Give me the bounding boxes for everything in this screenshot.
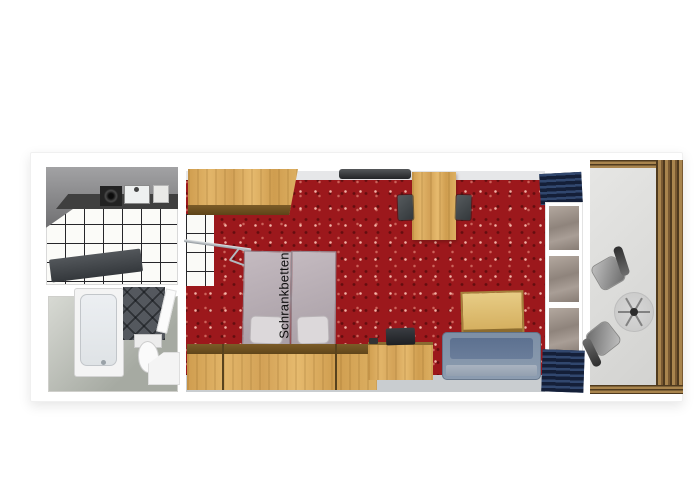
bathtub <box>74 288 124 377</box>
dining-table <box>412 172 456 240</box>
desk-tv <box>386 327 416 345</box>
pillow-right <box>297 315 330 344</box>
sideboard-seam <box>222 344 224 390</box>
sideboard <box>187 354 377 390</box>
wall-tv <box>339 169 411 179</box>
sofa <box>442 332 541 380</box>
desk <box>368 342 433 380</box>
bathroom-tiled-wall <box>123 287 165 340</box>
wall-beds-label: Schrankbetten <box>277 248 292 344</box>
window-glass-panel <box>549 256 579 302</box>
sideboard-seam <box>335 344 337 390</box>
window-glass-panel <box>549 206 579 250</box>
window-glass-panel <box>549 308 579 354</box>
curtain-top <box>539 172 583 205</box>
sofa-back-cushion <box>450 338 533 359</box>
balcony-window <box>545 202 583 358</box>
desk-phone-icon <box>369 338 378 344</box>
wardrobe-front-edge <box>188 205 298 215</box>
coffee-table <box>460 290 524 338</box>
dining-chair-right <box>456 195 472 221</box>
table-center-hub <box>630 308 638 316</box>
balcony-railing-right <box>656 160 683 394</box>
drain-icon <box>101 360 106 365</box>
stove-burner-icon <box>104 189 118 203</box>
apartment-floorplan: Schrankbetten <box>0 0 700 500</box>
kitchen-appliance <box>153 185 169 203</box>
balcony-round-table <box>614 292 654 332</box>
kitchen-sink <box>124 185 150 204</box>
mirrored-nook <box>186 214 214 286</box>
wardrobe <box>188 169 298 215</box>
curtain-bottom <box>541 349 584 392</box>
bathtub-basin <box>80 294 117 366</box>
stove <box>100 186 122 206</box>
faucet-icon <box>134 187 139 192</box>
balcony-railing-bottom <box>590 385 683 394</box>
sofa-front-edge <box>446 365 537 376</box>
dining-chair-left <box>398 195 414 221</box>
